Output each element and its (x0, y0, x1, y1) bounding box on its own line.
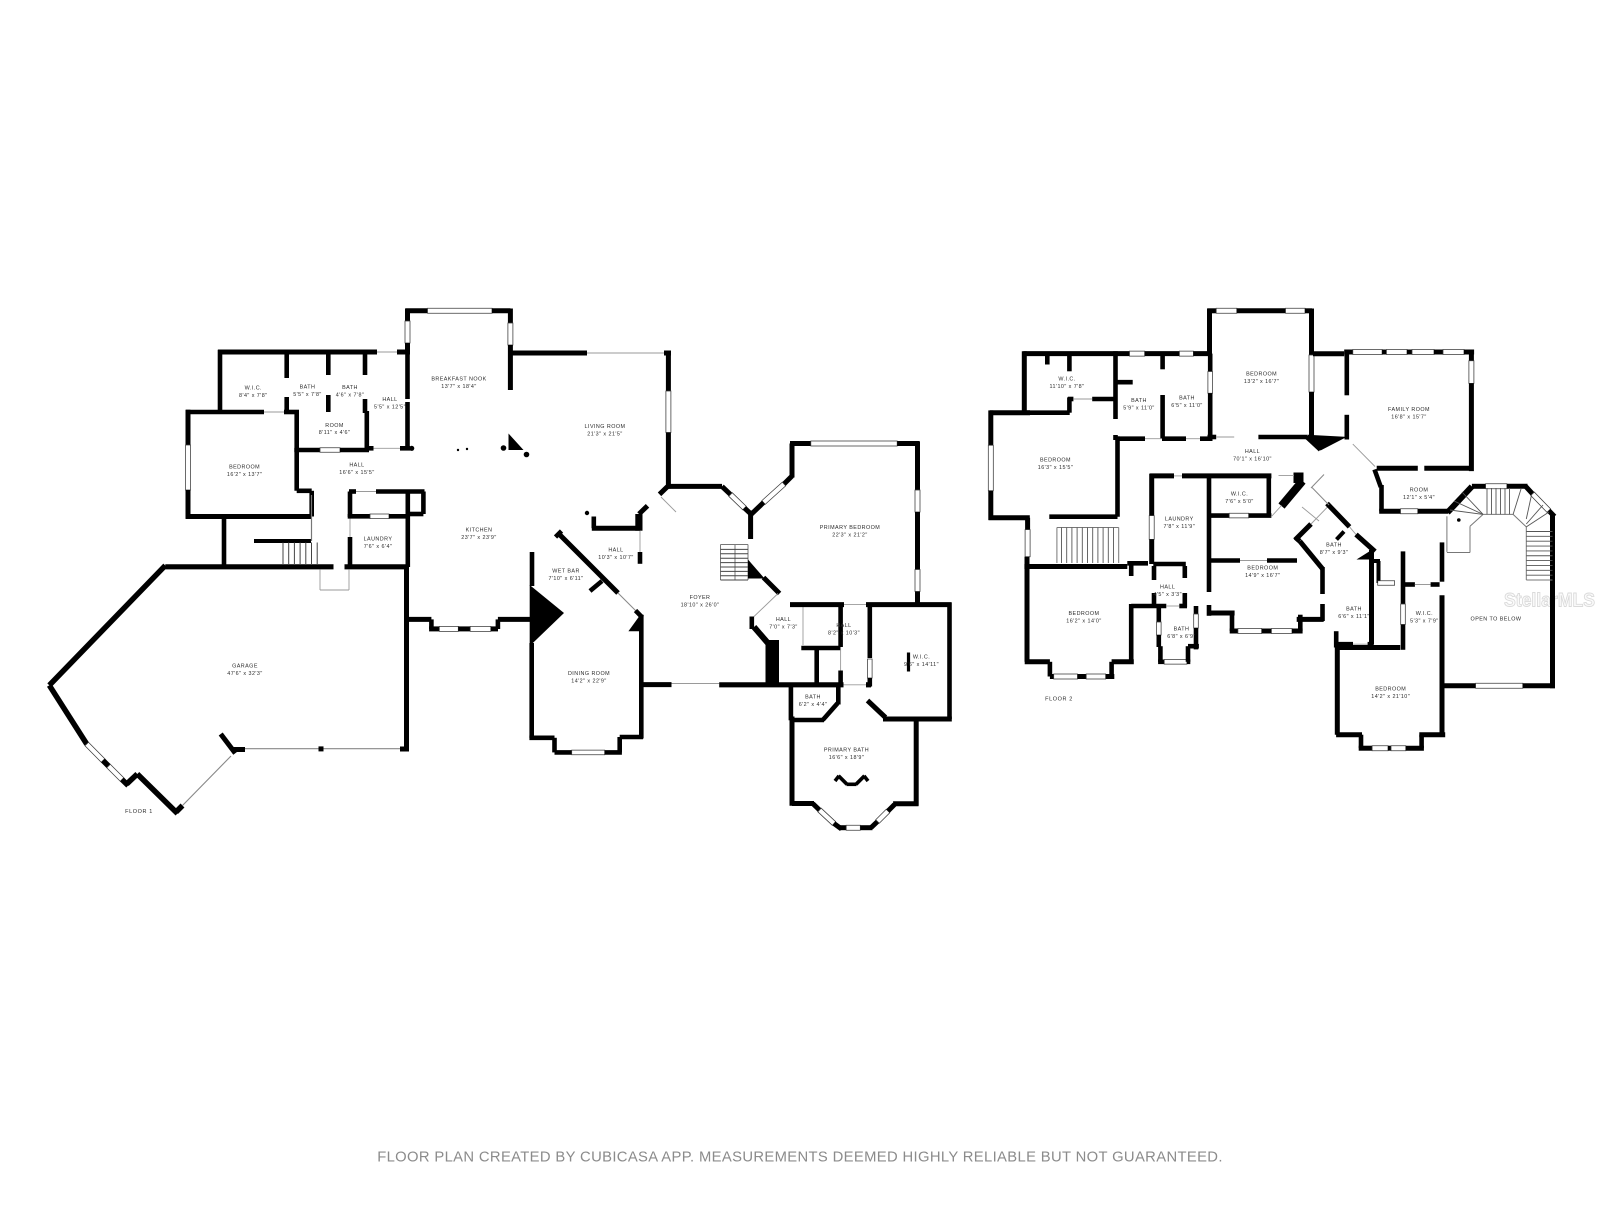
svg-text:FLOOR PLAN CREATED BY CUBICASA: FLOOR PLAN CREATED BY CUBICASA APP. MEAS… (377, 1150, 1223, 1166)
svg-text:6'8" x 6'9": 6'8" x 6'9" (1167, 634, 1196, 640)
svg-text:BREAKFAST NOOK: BREAKFAST NOOK (431, 377, 486, 383)
svg-text:BATH: BATH (300, 385, 316, 391)
svg-text:12'1" x 5'4": 12'1" x 5'4" (1403, 495, 1435, 501)
svg-text:PRIMARY BATH: PRIMARY BATH (824, 748, 869, 754)
svg-text:16'2" x 13'7": 16'2" x 13'7" (227, 472, 262, 478)
svg-text:8'7" x 9'3": 8'7" x 9'3" (1320, 550, 1349, 556)
svg-text:HALL: HALL (608, 548, 623, 554)
svg-text:7'10" x 6'11": 7'10" x 6'11" (548, 576, 583, 582)
svg-text:BEDROOM: BEDROOM (229, 465, 260, 471)
svg-text:W.I.C.: W.I.C. (1058, 377, 1075, 383)
svg-text:HALL: HALL (836, 623, 851, 629)
svg-text:6'2" x 4'4": 6'2" x 4'4" (799, 702, 828, 708)
svg-text:14'9" x 16'7": 14'9" x 16'7" (1245, 573, 1280, 579)
svg-text:14'2" x 22'9": 14'2" x 22'9" (571, 678, 606, 684)
svg-text:13'2" x 16'7": 13'2" x 16'7" (1244, 379, 1279, 385)
svg-text:13'7" x 18'4": 13'7" x 18'4" (441, 384, 476, 390)
svg-text:GARAGE: GARAGE (232, 664, 258, 670)
svg-text:StellarMLS: StellarMLS (1504, 591, 1595, 612)
svg-text:OPEN TO BELOW: OPEN TO BELOW (1471, 617, 1522, 623)
svg-text:22'3" x 21'2": 22'3" x 21'2" (832, 532, 867, 538)
svg-text:BATH: BATH (1174, 627, 1190, 633)
svg-text:FOYER: FOYER (690, 595, 711, 601)
svg-text:BEDROOM: BEDROOM (1246, 372, 1277, 378)
svg-text:16'3" x 15'5": 16'3" x 15'5" (1038, 465, 1073, 471)
svg-text:23'7" x 23'9": 23'7" x 23'9" (461, 535, 496, 541)
svg-text:70'1" x 16'10": 70'1" x 16'10" (1233, 456, 1272, 462)
svg-text:6'6" x 11'1": 6'6" x 11'1" (1338, 614, 1370, 620)
svg-text:BATH: BATH (1326, 543, 1342, 549)
svg-text:14'2" x 21'10": 14'2" x 21'10" (1371, 694, 1410, 700)
svg-text:8'2" x 10'3": 8'2" x 10'3" (828, 630, 860, 636)
svg-text:BEDROOM: BEDROOM (1040, 458, 1071, 464)
svg-text:HALL: HALL (349, 463, 364, 469)
svg-text:16'6" x 18'9": 16'6" x 18'9" (829, 755, 864, 761)
svg-text:5'3" x 7'9": 5'3" x 7'9" (1410, 618, 1439, 624)
svg-text:16'2" x 14'0": 16'2" x 14'0" (1066, 618, 1101, 624)
svg-text:FLOOR 1: FLOOR 1 (125, 809, 153, 815)
svg-text:BATH: BATH (342, 385, 358, 391)
svg-text:BATH: BATH (1179, 396, 1195, 402)
svg-text:21'3" x 21'5": 21'3" x 21'5" (587, 431, 622, 437)
svg-text:10'3" x 10'7": 10'3" x 10'7" (598, 555, 633, 561)
svg-text:5'9" x 11'0": 5'9" x 11'0" (1123, 405, 1155, 411)
svg-text:W.I.C.: W.I.C. (913, 655, 930, 661)
svg-text:4'5" x 3'3": 4'5" x 3'3" (1153, 592, 1182, 598)
svg-text:BATH: BATH (1346, 607, 1362, 613)
svg-text:BEDROOM: BEDROOM (1247, 566, 1278, 572)
svg-text:BEDROOM: BEDROOM (1068, 611, 1099, 617)
svg-text:HALL: HALL (776, 617, 791, 623)
svg-text:7'8" x 11'9": 7'8" x 11'9" (1164, 524, 1196, 530)
svg-text:16'8" x 15'7": 16'8" x 15'7" (1391, 414, 1426, 420)
svg-text:FAMILY ROOM: FAMILY ROOM (1388, 407, 1430, 413)
svg-text:5'5" x 7'8": 5'5" x 7'8" (293, 392, 322, 398)
svg-text:8'11" x 4'6": 8'11" x 4'6" (319, 430, 351, 436)
svg-text:ROOM: ROOM (325, 423, 344, 429)
svg-text:7'6" x 5'0": 7'6" x 5'0" (1225, 499, 1254, 505)
svg-text:5'5" x 12'5": 5'5" x 12'5" (374, 404, 406, 410)
svg-text:18'10" x 26'0": 18'10" x 26'0" (681, 602, 720, 608)
svg-text:11'10" x 7'8": 11'10" x 7'8" (1049, 384, 1084, 390)
svg-text:9'6" x 14'11": 9'6" x 14'11" (904, 662, 939, 668)
svg-text:WET BAR: WET BAR (552, 569, 580, 575)
svg-text:HALL: HALL (1160, 585, 1175, 591)
svg-text:PRIMARY BEDROOM: PRIMARY BEDROOM (820, 525, 881, 531)
svg-text:BEDROOM: BEDROOM (1375, 687, 1406, 693)
svg-text:W.I.C.: W.I.C. (245, 386, 262, 392)
svg-text:LAUNDRY: LAUNDRY (1165, 517, 1194, 523)
svg-text:7'0" x 7'3": 7'0" x 7'3" (769, 624, 798, 630)
svg-text:DINING ROOM: DINING ROOM (568, 671, 610, 677)
svg-text:4'6" x 7'8": 4'6" x 7'8" (336, 392, 365, 398)
svg-text:ROOM: ROOM (1410, 488, 1429, 494)
svg-text:KITCHEN: KITCHEN (466, 528, 493, 534)
svg-text:W.I.C.: W.I.C. (1416, 611, 1433, 617)
svg-text:FLOOR 2: FLOOR 2 (1045, 697, 1073, 703)
svg-text:LIVING ROOM: LIVING ROOM (585, 424, 626, 430)
svg-text:HALL: HALL (1245, 449, 1260, 455)
svg-text:7'6" x 6'4": 7'6" x 6'4" (364, 544, 393, 550)
svg-text:6'5" x 11'0": 6'5" x 11'0" (1171, 403, 1203, 409)
svg-text:W.I.C.: W.I.C. (1231, 492, 1248, 498)
svg-text:HALL: HALL (382, 397, 397, 403)
svg-text:BATH: BATH (1131, 398, 1147, 404)
svg-text:47'6" x 32'3": 47'6" x 32'3" (227, 671, 262, 677)
svg-text:8'4" x 7'8": 8'4" x 7'8" (239, 393, 268, 399)
svg-text:16'6" x 15'5": 16'6" x 15'5" (339, 470, 374, 476)
svg-text:LAUNDRY: LAUNDRY (364, 537, 393, 543)
svg-text:BATH: BATH (805, 695, 821, 701)
